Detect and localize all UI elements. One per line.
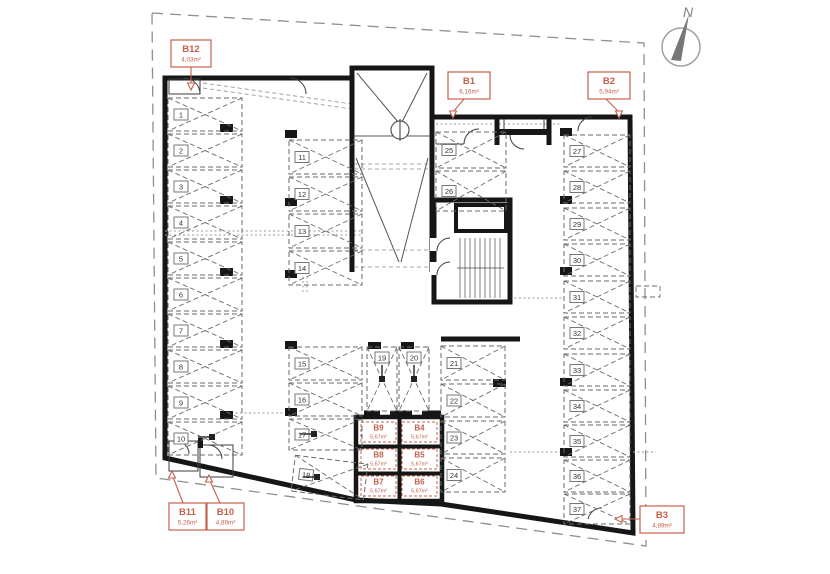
- north-label: N: [683, 4, 694, 20]
- room-label-id: B3: [656, 510, 668, 521]
- storage-room-area: 5,67m²: [370, 435, 387, 441]
- spot-number: 31: [573, 293, 581, 302]
- storage-room-area: 5,67m²: [411, 462, 428, 468]
- storage-room-area: 5,67m²: [411, 489, 428, 495]
- storage-room-id: B4: [414, 424, 425, 433]
- spot-number: 35: [573, 437, 581, 446]
- storage-room-id: B5: [414, 451, 425, 460]
- spot-number: 30: [573, 256, 581, 265]
- spot-number: 15: [298, 360, 306, 369]
- spot-number: 1: [179, 111, 183, 120]
- door-opening: [430, 262, 437, 275]
- storage-room-id: B6: [414, 478, 425, 487]
- spot-number: 6: [179, 291, 183, 300]
- room-label-area: 4,03m²: [181, 57, 201, 64]
- floor-plan-canvas: 1234567891011121314151617181920212223242…: [0, 0, 830, 574]
- spot-number: 25: [445, 146, 453, 155]
- spot-number: 8: [179, 363, 183, 372]
- storage-room-id: B8: [373, 451, 384, 460]
- spot-number: 24: [450, 471, 458, 480]
- storage-room-area: 5,67m²: [370, 489, 387, 495]
- spot-number: 27: [573, 147, 581, 156]
- spot-number: 37: [573, 505, 581, 514]
- spot-number: 19: [378, 354, 386, 363]
- spot-number: 29: [573, 220, 581, 229]
- spot-number: 22: [450, 397, 458, 406]
- floor-plan-drawing: 1234567891011121314151617181920212223242…: [0, 0, 830, 574]
- spot-number: 26: [445, 187, 453, 196]
- spot-number: 10: [177, 435, 185, 444]
- spot-number: 16: [298, 396, 306, 405]
- spot-number: 11: [298, 153, 306, 162]
- spot-number: 21: [450, 359, 458, 368]
- spot-number: 9: [179, 399, 183, 408]
- room-label-id: B2: [603, 76, 615, 87]
- room-label-id: B12: [182, 44, 199, 55]
- room-label-area: 5,94m²: [599, 89, 619, 96]
- storage-room-id: B7: [373, 478, 384, 487]
- room-label-area: 6,16m²: [459, 89, 479, 96]
- spot-number: 5: [179, 255, 183, 264]
- storage-room-area: 5,67m²: [411, 435, 428, 441]
- spot-number: 17: [298, 431, 306, 440]
- room-label-id: B11: [179, 507, 197, 518]
- spot-number: 33: [573, 366, 581, 375]
- spot-number: 3: [179, 183, 183, 192]
- storage-room-area: 5,67m²: [370, 462, 387, 468]
- spot-number: 20: [410, 354, 418, 363]
- spot-number: 14: [298, 264, 306, 273]
- spot-number: 7: [179, 327, 183, 336]
- spot-number: 28: [573, 183, 581, 192]
- spot-number: 36: [573, 472, 581, 481]
- room-label-area: 4,89m²: [216, 520, 236, 527]
- room-label-area: 4,89m²: [652, 523, 672, 530]
- door-opening: [430, 238, 437, 251]
- room-label-area: 5,26m²: [178, 520, 198, 527]
- storage-room-id: B9: [373, 424, 384, 433]
- spot-number: 13: [298, 227, 306, 236]
- room-label-id: B1: [463, 76, 476, 87]
- spot-number: 18: [301, 470, 310, 480]
- spot-number: 23: [450, 434, 458, 443]
- spot-number: 34: [573, 402, 581, 411]
- spot-number: 12: [298, 190, 306, 199]
- spot-number: 4: [179, 219, 183, 228]
- room-label-id: B10: [217, 507, 234, 518]
- spot-number: 2: [179, 147, 183, 156]
- spot-number: 32: [573, 329, 581, 338]
